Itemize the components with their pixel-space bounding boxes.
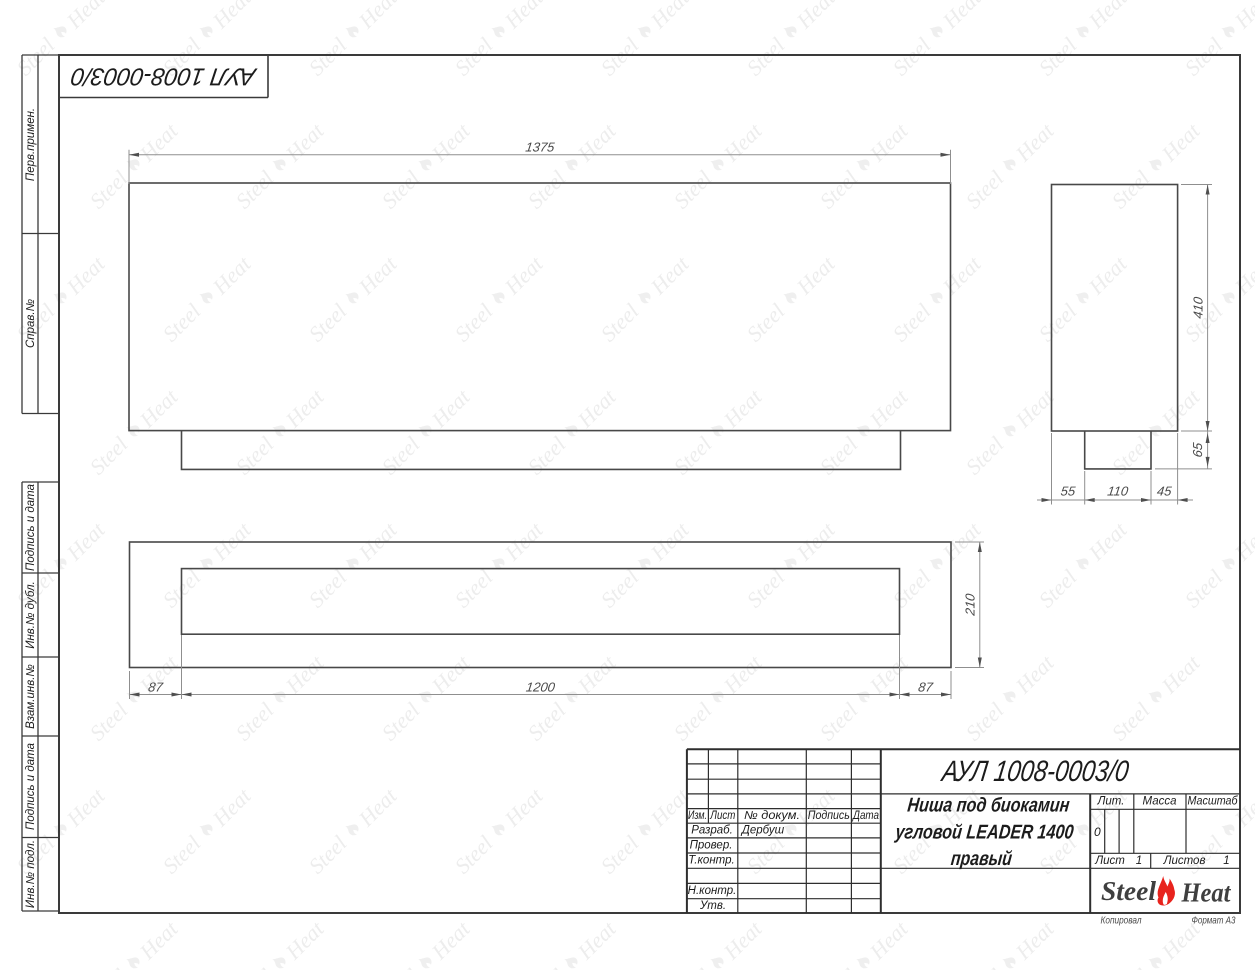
svg-text:1: 1 xyxy=(1136,855,1142,867)
svg-text:Дата: Дата xyxy=(851,810,879,822)
svg-text:Подпись и дата: Подпись и дата xyxy=(25,484,37,571)
svg-text:Лист: Лист xyxy=(1094,855,1125,867)
svg-text:87: 87 xyxy=(917,680,934,695)
svg-text:0: 0 xyxy=(1094,825,1101,839)
svg-text:Инв.№ подл.: Инв.№ подл. xyxy=(25,840,37,908)
svg-text:АУЛ 1008-0003/0: АУЛ 1008-0003/0 xyxy=(939,755,1132,788)
svg-text:210: 210 xyxy=(962,592,977,617)
svg-text:110: 110 xyxy=(1107,484,1130,499)
svg-text:1: 1 xyxy=(1223,855,1229,867)
svg-text:Steel: Steel xyxy=(1101,876,1156,906)
svg-text:Дербуш: Дербуш xyxy=(740,825,785,837)
svg-text:Масштаб: Масштаб xyxy=(1188,796,1238,808)
svg-text:Лит.: Лит. xyxy=(1097,796,1125,808)
svg-text:правый: правый xyxy=(950,848,1013,870)
svg-text:Утв.: Утв. xyxy=(699,900,726,912)
svg-text:Н.контр.: Н.контр. xyxy=(688,885,737,897)
svg-text:Heat: Heat xyxy=(1181,878,1232,908)
svg-text:Провер.: Провер. xyxy=(690,840,733,852)
svg-text:Разраб.: Разраб. xyxy=(691,825,733,837)
svg-text:Инв.№ дубл.: Инв.№ дубл. xyxy=(25,581,37,649)
svg-text:Изм.: Изм. xyxy=(688,810,707,822)
svg-text:угловой LEADER 1400: угловой LEADER 1400 xyxy=(894,822,1075,844)
svg-text:55: 55 xyxy=(1060,484,1077,499)
svg-text:АУЛ 1008-0003/0: АУЛ 1008-0003/0 xyxy=(69,63,259,90)
svg-text:Справ.№: Справ.№ xyxy=(25,298,37,348)
svg-text:Листов: Листов xyxy=(1163,855,1206,867)
svg-text:Копировал: Копировал xyxy=(1101,915,1142,927)
svg-text:Перв.примен.: Перв.примен. xyxy=(25,108,37,181)
svg-text:45: 45 xyxy=(1156,484,1173,499)
svg-text:Подпись и дата: Подпись и дата xyxy=(25,743,37,830)
svg-text:Взам.инв.№: Взам.инв.№ xyxy=(25,664,37,729)
svg-text:Подпись: Подпись xyxy=(808,810,850,822)
svg-text:Масса: Масса xyxy=(1142,796,1176,808)
svg-text:Т.контр.: Т.контр. xyxy=(688,855,734,867)
svg-text:87: 87 xyxy=(147,680,164,695)
svg-text:1375: 1375 xyxy=(525,140,556,155)
svg-text:Ниша под биокамин: Ниша под биокамин xyxy=(906,795,1070,817)
svg-text:Лист: Лист xyxy=(709,810,735,822)
svg-text:Формат А3: Формат А3 xyxy=(1192,915,1236,927)
svg-text:1200: 1200 xyxy=(525,680,556,695)
svg-text:№ докум.: № докум. xyxy=(744,810,800,822)
svg-text:410: 410 xyxy=(1191,295,1206,319)
svg-text:65: 65 xyxy=(1190,441,1205,458)
